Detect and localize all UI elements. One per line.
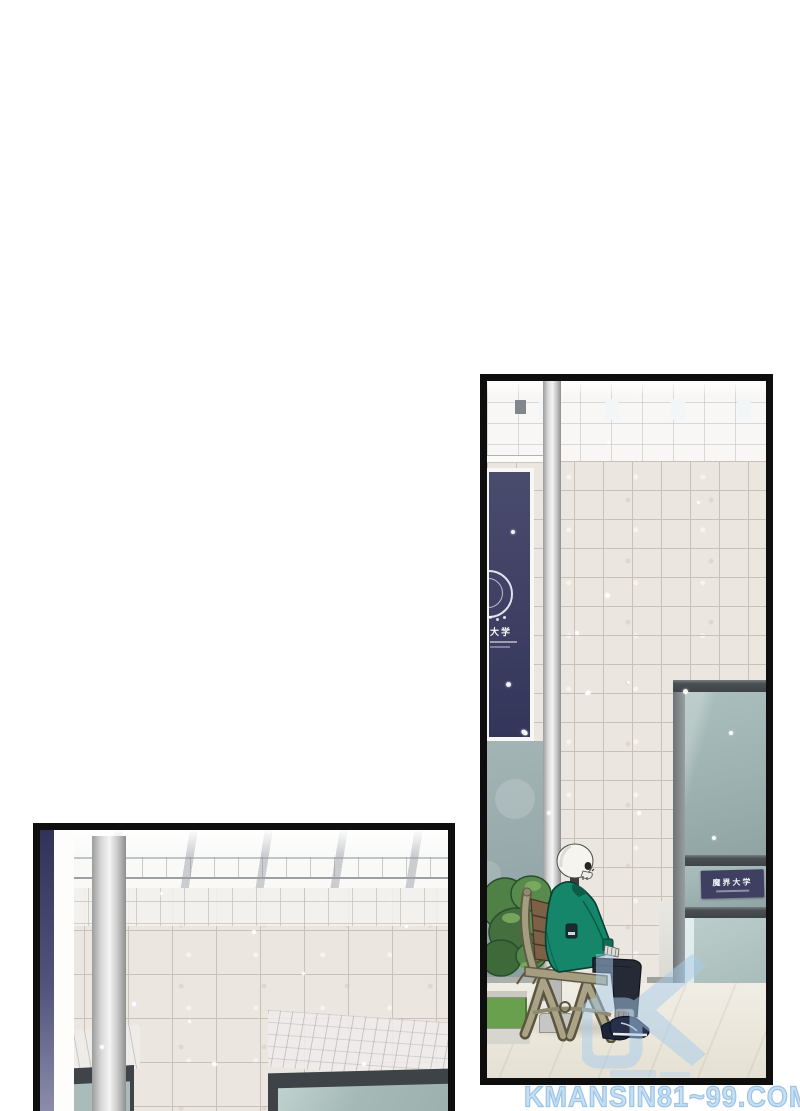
banner-label: 大学 (490, 625, 530, 638)
snow-dot (547, 811, 551, 815)
snow-dot (712, 836, 716, 840)
snow-dot (302, 972, 305, 975)
snow-dot (100, 1045, 104, 1049)
snow-dot (405, 925, 408, 928)
window-glass-right (278, 1084, 448, 1111)
snow-dot (252, 930, 256, 934)
jacket-patch (566, 924, 577, 938)
snow-dot (697, 501, 700, 504)
panel-left-scene (40, 830, 448, 1111)
comic-panel-left (33, 823, 455, 1111)
watermark-text: KMANSIN81~99.COM (524, 1081, 800, 1111)
railing-balusters (70, 857, 448, 879)
university-banner-face: 大学 (489, 472, 530, 737)
entrance-sign-subtitle-bar (716, 890, 749, 893)
entrance-sign: 魔界大学 (701, 869, 765, 899)
sky-wash (487, 381, 766, 396)
handrail (487, 455, 545, 463)
university-emblem-marks (503, 616, 506, 619)
banner-edge-strip (40, 830, 54, 1111)
snow-dot (506, 682, 511, 687)
snow-dot (607, 441, 610, 444)
wall-gap (54, 830, 74, 1111)
upper-window-band (487, 399, 766, 420)
snow-dot (160, 892, 163, 895)
university-banner: 大学 (487, 468, 534, 741)
bokeh-highlight (495, 779, 535, 819)
banner-subtitle-bar (490, 641, 517, 643)
entrance-sign-label: 魔界大学 (701, 876, 764, 889)
snow-dot (575, 631, 579, 635)
snow-dot (188, 1020, 191, 1023)
glass-pane (685, 692, 766, 855)
snow-dot (683, 689, 688, 694)
snow-dot (627, 681, 630, 684)
snow-dot (729, 731, 733, 735)
skull-head (557, 844, 594, 880)
watermark-logo-icon (582, 950, 732, 1090)
comic-page: 大学 魔界大学 (0, 0, 800, 1111)
banner-subtitle-bar (490, 646, 510, 648)
glass-sheen (685, 692, 766, 855)
facade-corner-edge (673, 680, 685, 991)
facade-frame-bar (685, 907, 766, 918)
upper-window-tick (515, 400, 526, 414)
snow-dot (520, 728, 529, 736)
snow-dot (605, 593, 610, 598)
snow-dot (511, 530, 515, 534)
column-pole (92, 836, 126, 1111)
facade-frame-bar (685, 855, 766, 866)
snow-dot (362, 1062, 366, 1066)
snow-dot (637, 811, 641, 815)
snow-dot (132, 1002, 136, 1006)
